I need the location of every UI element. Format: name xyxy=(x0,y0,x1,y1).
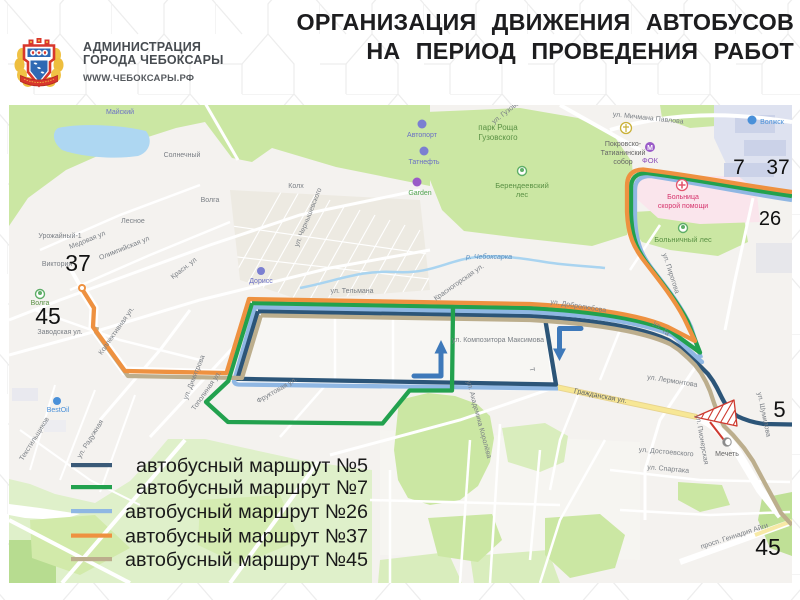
svg-text:собор: собор xyxy=(613,158,632,166)
svg-text:ул. Композитора Максимова: ул. Композитора Максимова xyxy=(452,337,544,344)
svg-text:Лесное: Лесное xyxy=(121,218,145,225)
svg-text:37: 37 xyxy=(65,250,91,276)
svg-text:ул. Тельмана: ул. Тельмана xyxy=(330,288,373,295)
svg-text:р. Чебоксарка: р. Чебоксарка xyxy=(465,253,512,261)
svg-text:Урожайный-1: Урожайный-1 xyxy=(38,232,81,240)
svg-text:Дорисс: Дорисс xyxy=(249,278,273,285)
svg-text:ФОК: ФОК xyxy=(642,156,659,165)
svg-text:скорой помощи: скорой помощи xyxy=(658,202,708,210)
svg-text:Покровско-: Покровско- xyxy=(605,141,642,148)
svg-text:Автопорт: Автопорт xyxy=(407,132,438,139)
svg-text:автобусный маршрут №45: автобусный маршрут №45 xyxy=(125,549,368,571)
svg-text:Берендеевский: Берендеевский xyxy=(495,181,549,190)
svg-text:автобусный маршрут №37: автобусный маршрут №37 xyxy=(125,526,368,548)
svg-text:26: 26 xyxy=(759,208,781,230)
svg-text:37: 37 xyxy=(766,156,789,179)
svg-text:Заводская ул.: Заводская ул. xyxy=(37,329,82,336)
svg-text:автобусный маршрут №5: автобусный маршрут №5 xyxy=(136,455,368,477)
svg-text:7: 7 xyxy=(733,156,745,179)
svg-text:Майский: Майский xyxy=(106,108,134,116)
svg-text:Солнечный: Солнечный xyxy=(164,151,201,159)
svg-text:Больничный лес: Больничный лес xyxy=(654,235,712,244)
svg-text:Гузовского: Гузовского xyxy=(478,133,518,142)
svg-text:Волга: Волга xyxy=(201,197,220,204)
svg-text:Колх: Колх xyxy=(288,183,304,190)
svg-text:5: 5 xyxy=(773,397,785,422)
svg-text:лес: лес xyxy=(516,190,529,199)
svg-text:Garden: Garden xyxy=(408,190,431,197)
svg-text:Больница: Больница xyxy=(667,194,699,201)
svg-text:BestOil: BestOil xyxy=(47,407,70,414)
svg-text:автобусный маршрут №7: автобусный маршрут №7 xyxy=(136,477,368,499)
svg-text:автобусный маршрут №26: автобусный маршрут №26 xyxy=(125,501,368,523)
svg-text:45: 45 xyxy=(755,534,781,560)
svg-text:Татнефть: Татнефть xyxy=(408,159,439,166)
svg-text:парк Роща: парк Роща xyxy=(478,123,518,132)
svg-text:Волжск: Волжск xyxy=(760,119,785,126)
svg-text:45: 45 xyxy=(35,303,61,329)
svg-text:Татианинский: Татианинский xyxy=(601,149,646,157)
svg-text:Мечеть: Мечеть xyxy=(715,451,739,458)
svg-text:М: М xyxy=(647,145,653,152)
